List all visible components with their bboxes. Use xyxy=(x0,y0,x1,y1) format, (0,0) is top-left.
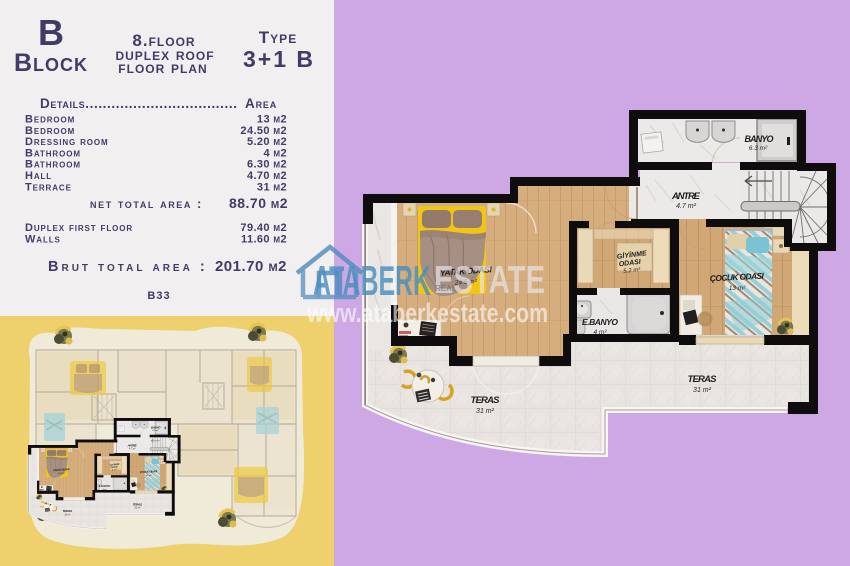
svg-text:79.40 m2: 79.40 m2 xyxy=(240,222,287,234)
svg-text:Duplex first floor: Duplex first floor xyxy=(25,222,133,234)
svg-text:Bathroom: Bathroom xyxy=(25,147,81,159)
svg-text:3+1 B: 3+1 B xyxy=(243,46,315,72)
svg-text:Hall: Hall xyxy=(25,170,52,182)
svg-text:5.20 m2: 5.20 m2 xyxy=(247,136,287,148)
svg-text:floor plan: floor plan xyxy=(118,58,207,77)
svg-text:88.70 m2: 88.70 m2 xyxy=(229,195,288,211)
svg-text:4.7 m²: 4.7 m² xyxy=(676,203,697,210)
svg-text:Terrace: Terrace xyxy=(25,181,72,193)
svg-text:REAL: REAL xyxy=(435,284,457,293)
svg-text:31 m²: 31 m² xyxy=(693,387,712,394)
svg-text:B: B xyxy=(38,12,64,53)
svg-text:4 m²: 4 m² xyxy=(594,329,608,336)
svg-text:Details.......................: Details.................................… xyxy=(40,96,238,111)
svg-text:11.60 m2: 11.60 m2 xyxy=(241,234,287,246)
svg-text:4 m2: 4 m2 xyxy=(263,147,287,159)
svg-text:13 m2: 13 m2 xyxy=(257,114,287,126)
svg-text:201.70 m2: 201.70 m2 xyxy=(215,258,287,275)
svg-text:Bedroom: Bedroom xyxy=(25,125,75,137)
svg-text:Block: Block xyxy=(14,49,88,77)
svg-text:ATABERK: ATABERK xyxy=(313,257,431,304)
svg-text:Bedroom: Bedroom xyxy=(25,114,75,126)
svg-text:ESTATE: ESTATE xyxy=(434,259,545,302)
svg-text:4.70 m2: 4.70 m2 xyxy=(247,170,287,182)
svg-text:Brut total area :: Brut total area : xyxy=(48,259,208,275)
svg-text:31 m2: 31 m2 xyxy=(257,181,287,193)
svg-text:Dressing room: Dressing room xyxy=(25,136,109,148)
svg-text:6.30 m2: 6.30 m2 xyxy=(247,159,287,171)
svg-text:net total area :: net total area : xyxy=(90,197,203,211)
svg-text:TERAS: TERAS xyxy=(688,374,718,385)
svg-text:6.3 m²: 6.3 m² xyxy=(749,145,768,152)
svg-text:www.ataberkestate.com: www.ataberkestate.com xyxy=(306,298,548,328)
svg-text:24.50 m2: 24.50 m2 xyxy=(240,125,287,137)
svg-text:BANYO: BANYO xyxy=(745,134,774,144)
svg-text:B33: B33 xyxy=(147,290,170,302)
svg-text:Area: Area xyxy=(245,96,277,111)
svg-text:E.BANYO: E.BANYO xyxy=(582,317,618,327)
svg-text:Bathroom: Bathroom xyxy=(25,159,81,171)
svg-text:13 m²: 13 m² xyxy=(729,285,746,292)
svg-text:TERAS: TERAS xyxy=(471,395,501,406)
svg-text:Walls: Walls xyxy=(25,234,61,246)
svg-text:31 m²: 31 m² xyxy=(476,408,495,415)
svg-text:ANTRE: ANTRE xyxy=(671,191,701,202)
svg-text:Type: Type xyxy=(259,28,297,47)
